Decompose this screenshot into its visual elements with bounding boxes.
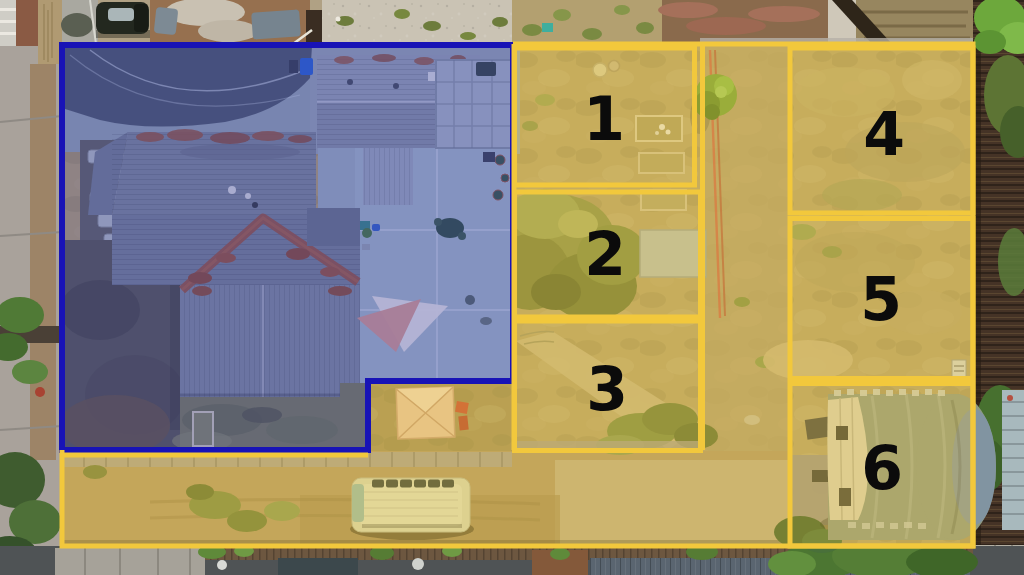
- zone-label-4: 4: [863, 99, 905, 169]
- top-strip: [61, 0, 973, 44]
- screenshot-root: 1 2 3 4 5 6: [0, 0, 1024, 575]
- street-left: [0, 0, 67, 575]
- zone-label-5: 5: [860, 264, 902, 334]
- zone-label-6: 6: [861, 433, 903, 503]
- aerial-photo: 1 2 3 4 5 6: [0, 0, 1024, 575]
- parked-car: [96, 2, 150, 38]
- zone-label-1: 1: [583, 84, 625, 154]
- teal-object: [542, 23, 553, 32]
- storage-container: [1002, 390, 1024, 530]
- zone-label-3: 3: [586, 354, 628, 424]
- tint-overlays: [62, 44, 973, 546]
- zone-label-2: 2: [584, 219, 626, 289]
